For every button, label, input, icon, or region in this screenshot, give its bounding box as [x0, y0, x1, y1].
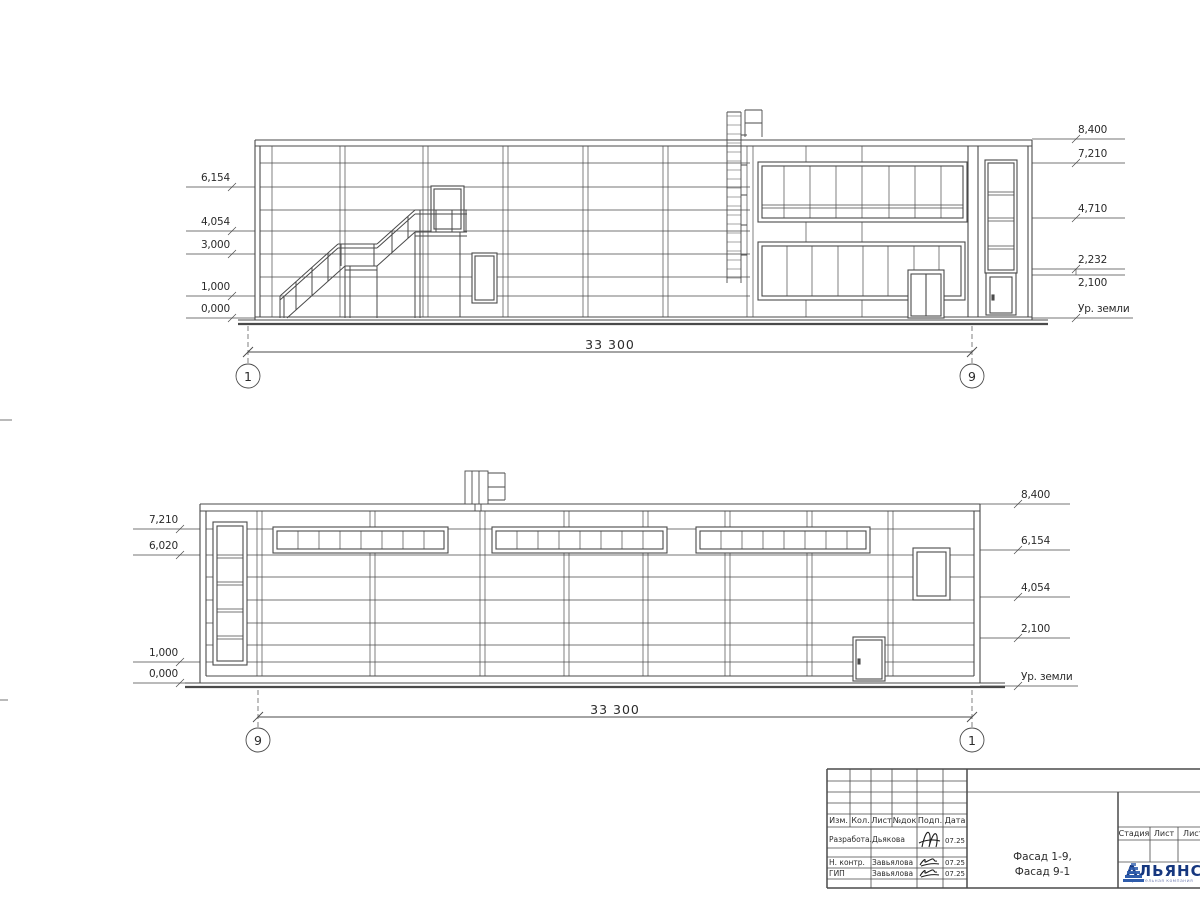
- tb-role: Н. контр.: [829, 858, 871, 867]
- tb-col-data: Дата: [943, 816, 967, 825]
- tb-col-kol: Кол.: [850, 816, 871, 825]
- elevation-mark: 2,100: [1078, 277, 1107, 289]
- signature-zavyalova-2: [920, 870, 939, 877]
- dimension-label: 33 300: [535, 337, 685, 352]
- tb-date: 07.25: [943, 837, 967, 845]
- tb-sheet: Лист: [1150, 829, 1178, 838]
- roof-ladder: [727, 110, 762, 283]
- tb-col-list: Лист: [871, 816, 892, 825]
- tb-date: 07.25: [943, 870, 967, 878]
- signatures: [919, 832, 940, 877]
- tb-name: Дьякова: [872, 835, 916, 844]
- facade-bottom-dimension: [246, 712, 984, 752]
- tb-sheets: Листов: [1178, 829, 1200, 838]
- drawing-title-line2: Фасад 9-1: [967, 866, 1118, 878]
- drawing-title-line1: Фасад 1-9,: [967, 851, 1118, 863]
- axis-bubble-label: 9: [960, 369, 984, 384]
- sheet-fold-marks: [0, 420, 12, 700]
- signature-dyakova: [919, 832, 940, 847]
- elevation-mark: 3,000: [148, 239, 230, 251]
- elevation-mark: 1,000: [96, 647, 178, 659]
- facade-top-dimension: [236, 347, 984, 388]
- elevation-mark: 6,020: [96, 540, 178, 552]
- axis-bubble-label: 1: [236, 369, 260, 384]
- elevation-mark: 7,210: [96, 514, 178, 526]
- elevation-mark: 6,154: [148, 172, 230, 184]
- axis-bubble-label: 1: [960, 733, 984, 748]
- dimension-label: 33 300: [540, 702, 690, 717]
- tb-col-ndok: №док: [892, 816, 917, 825]
- tb-role: Разработал: [829, 835, 871, 844]
- elevation-mark: 4,054: [1021, 582, 1050, 594]
- ground-level-label: Ур. земли: [1021, 671, 1072, 683]
- elevation-mark: 8,400: [1078, 124, 1107, 136]
- elevation-mark: 1,000: [148, 281, 230, 293]
- elevation-mark: 0,000: [148, 303, 230, 315]
- tb-name: Завьялова: [872, 869, 916, 878]
- tb-role: ГИП: [829, 869, 871, 878]
- facade-bottom-door: [853, 637, 885, 681]
- ground-level-label: Ур. земли: [1078, 303, 1129, 315]
- pyramid-logo-icon: [1122, 861, 1145, 884]
- elevation-mark: 2,100: [1021, 623, 1050, 635]
- drawing-sheet: 6,154 4,054 3,000 1,000 0,000 8,400 7,21…: [0, 0, 1200, 900]
- tb-col-podp: Подп.: [917, 816, 943, 825]
- tb-date: 07.25: [943, 859, 967, 867]
- elevation-mark: 4,054: [148, 216, 230, 228]
- axis-bubble-label: 9: [246, 733, 270, 748]
- signature-zavyalova-1: [920, 859, 939, 866]
- elevation-mark: 7,210: [1078, 148, 1107, 160]
- tb-name: Завьялова: [872, 858, 916, 867]
- tb-stage: Стадия: [1118, 829, 1150, 838]
- facade-bottom-windows: [213, 522, 950, 665]
- elevation-mark: 8,400: [1021, 489, 1050, 501]
- facade-drawing-canvas: [0, 0, 1200, 900]
- elevation-mark: 6,154: [1021, 535, 1050, 547]
- roof-penthouse: [465, 471, 505, 511]
- elevation-mark: 4,710: [1078, 203, 1107, 215]
- elevation-mark: 2,232: [1078, 254, 1107, 266]
- tb-col-izm: Изм.: [827, 816, 850, 825]
- elevation-mark: 0,000: [96, 668, 178, 680]
- company-logo: АЛЬЯНС строительная компания: [1122, 861, 1200, 888]
